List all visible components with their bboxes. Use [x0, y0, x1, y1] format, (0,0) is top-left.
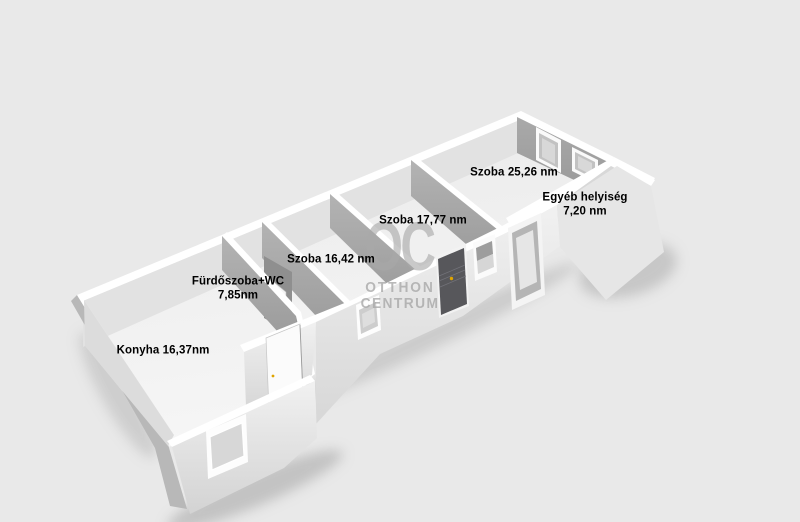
room-label-line: 7,85nm	[192, 289, 284, 303]
room-label-line: Szoba 17,77 nm	[379, 214, 467, 228]
room-label-line: Konyha 16,37nm	[117, 344, 210, 358]
entry-door	[436, 244, 469, 318]
room-label-line: Szoba 25,26 nm	[470, 166, 558, 180]
room-label-szoba-1777: Szoba 17,77 nm	[379, 214, 467, 228]
room-label-line: Fürdőszoba+WC	[192, 276, 284, 290]
room-label-szoba-2526: Szoba 25,26 nm	[470, 166, 558, 180]
entry-door-handle	[450, 277, 453, 280]
room-label-furdoszoba: Fürdőszoba+WC7,85nm	[192, 276, 284, 303]
room-label-line: 7,20 nm	[542, 205, 627, 219]
room-label-egyeb: Egyéb helyiség7,20 nm	[542, 192, 627, 219]
room-label-line: Egyéb helyiség	[542, 192, 627, 206]
room-label-szoba-1642: Szoba 16,42 nm	[287, 253, 375, 267]
floorplan-scene	[0, 0, 800, 522]
room-label-line: Szoba 16,42 nm	[287, 253, 375, 267]
floorplan-3d-view: OC OTTHON CENTRUM Konyha 16,37nm Fürdősz…	[0, 0, 800, 522]
room-label-konyha: Konyha 16,37nm	[117, 344, 210, 358]
doorway-opening	[508, 213, 545, 310]
